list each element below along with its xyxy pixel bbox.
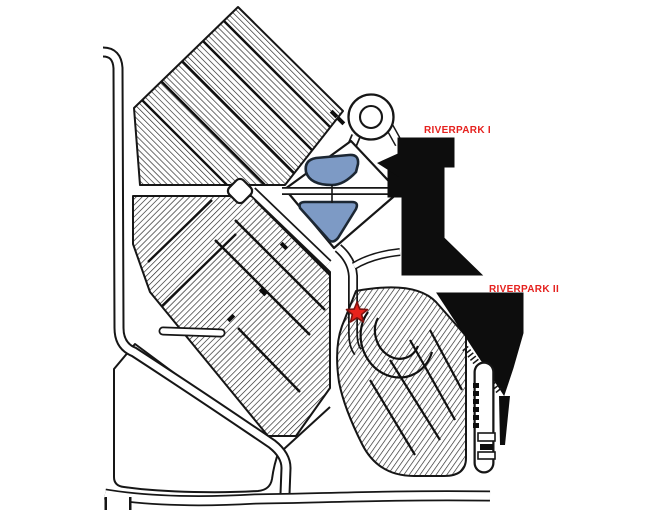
site-map-canvas: RIVERPARK I RIVERPARK II xyxy=(0,0,672,510)
label-riverpark2: RIVERPARK II xyxy=(489,284,559,295)
site-map: RIVERPARK I RIVERPARK II xyxy=(0,0,672,510)
label-riverpark1: RIVERPARK I xyxy=(424,125,491,136)
roundabout xyxy=(349,95,394,140)
